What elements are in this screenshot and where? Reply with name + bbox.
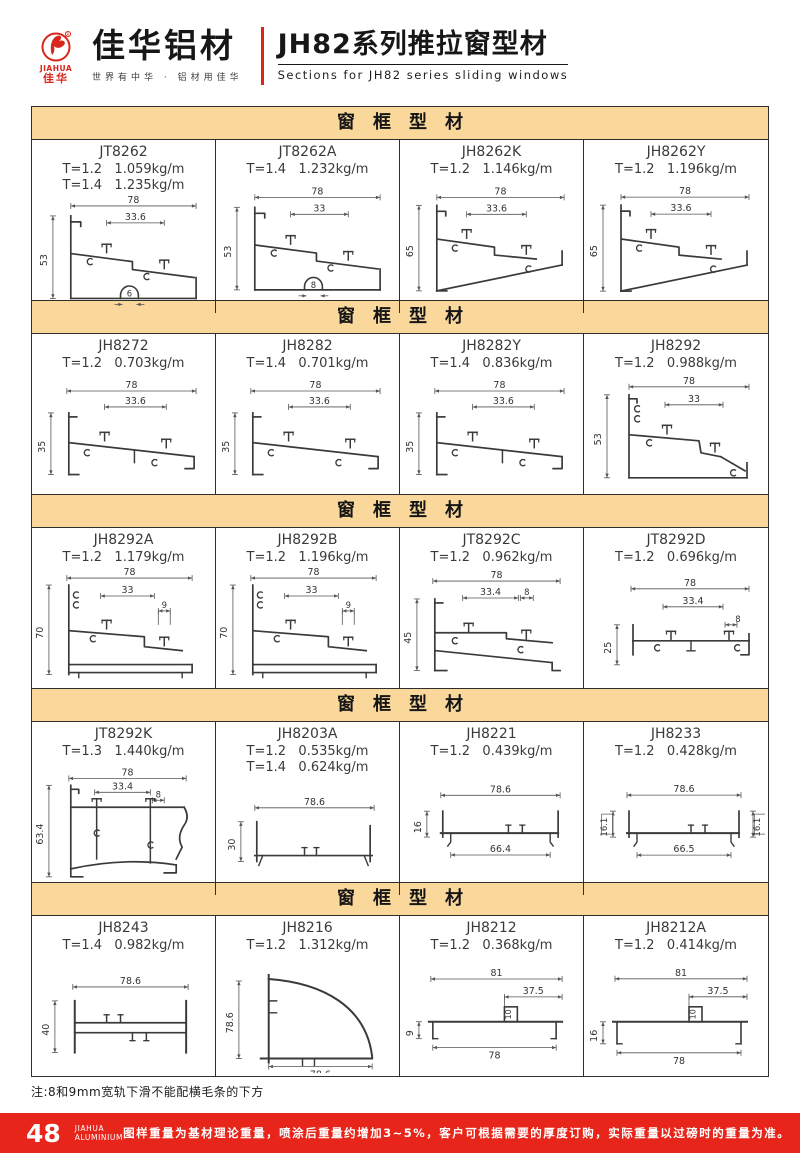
profile-model: JH8212A (584, 920, 768, 938)
profile-model: JT8262 (32, 144, 215, 162)
svg-text:63.4: 63.4 (35, 824, 46, 845)
profile-drawing-svg: 7833.635 (219, 373, 396, 491)
profile-model: JH8272 (32, 338, 215, 356)
profile-model: JH8221 (400, 726, 583, 744)
svg-text:8: 8 (311, 280, 316, 290)
profile-cell-JH8212: JH8212T=1.2 0.368kg/m8137.510978 (400, 916, 584, 1076)
profile-drawing: 7833.665 (584, 178, 768, 312)
profile-weight: T=1.2 1.196kg/m (584, 162, 768, 179)
svg-text:33.6: 33.6 (486, 204, 507, 215)
svg-text:33.6: 33.6 (125, 212, 146, 223)
profile-drawing-svg: 7833538 (219, 179, 396, 309)
profile-weight: T=1.4 1.232kg/m (216, 162, 399, 179)
profile-cell-JH8292B: JH8292BT=1.2 1.196kg/m7870339 (216, 528, 400, 688)
svg-text:8: 8 (524, 587, 529, 597)
profile-weight: T=1.4 0.701kg/m (216, 356, 399, 373)
profile-drawing-svg: 7870339 (219, 567, 396, 685)
profile-cell-JH8262K: JH8262KT=1.2 1.146kg/m7833.665 (400, 140, 584, 313)
brand-logo: R JIAHUA 佳华 佳华铝材 世界有中华 · 铝材用佳华 (30, 28, 243, 85)
profile-model: JT8292D (584, 532, 768, 550)
profile-model: JH8292 (584, 338, 768, 356)
svg-text:6: 6 (127, 289, 132, 299)
svg-text:10: 10 (504, 1010, 513, 1020)
svg-text:78.6: 78.6 (225, 1013, 236, 1034)
svg-text:25: 25 (603, 642, 614, 654)
page-number: 48 (26, 1121, 61, 1146)
profile-drawing: 78.630 (216, 777, 399, 894)
svg-text:33: 33 (688, 394, 700, 405)
svg-text:66.4: 66.4 (490, 844, 511, 855)
profile-cell-JH8203A: JH8203AT=1.2 0.535kg/mT=1.4 0.624kg/m78.… (216, 722, 400, 895)
profile-drawing: 7833.635 (216, 372, 399, 494)
profile-drawing: 7870339 (32, 566, 215, 688)
svg-text:78.6: 78.6 (120, 976, 141, 987)
footer-disclaimer: 图样重量为基材理论重量，喷涂后重量约增加3~5%，客户可根据需要的厚度订购，实际… (123, 1125, 790, 1141)
svg-text:78: 78 (127, 196, 139, 206)
profile-cell-JT8262: JT8262T=1.2 1.059kg/mT=1.4 1.235kg/m7833… (32, 140, 216, 313)
profile-cell-JH8292: JH8292T=1.2 0.988kg/m783353 (584, 334, 768, 494)
emblem-flower-icon: R (38, 28, 74, 64)
profile-weight: T=1.2 1.179kg/m (32, 550, 215, 567)
profile-drawing-svg: 7833.665 (403, 179, 580, 309)
profile-model: JT8262A (216, 144, 399, 162)
profile-row: JT8292KT=1.3 1.440kg/m7833.4863.4JH8203A… (31, 722, 769, 882)
jiahua-emblem-icon: R JIAHUA 佳华 (30, 28, 82, 85)
svg-text:33: 33 (121, 585, 133, 596)
header-divider (261, 27, 264, 85)
profile-weight: T=1.2 1.196kg/m (216, 550, 399, 567)
svg-text:16: 16 (589, 1030, 600, 1042)
svg-text:35: 35 (37, 441, 48, 453)
emblem-seal-text: 佳华 (30, 73, 82, 84)
svg-text:16.1: 16.1 (753, 818, 763, 837)
profile-model: JH8292A (32, 532, 215, 550)
profile-weight: T=1.2 0.962kg/m (400, 550, 583, 567)
profile-drawing-svg: 7833.635 (403, 373, 580, 491)
profile-drawing-svg: 78.630 (219, 778, 396, 891)
profile-model: JH8233 (584, 726, 768, 744)
profile-weight: T=1.2 0.414kg/m (584, 938, 768, 955)
svg-text:8: 8 (156, 790, 161, 800)
brand-tagline: 世界有中华 · 铝材用佳华 (92, 70, 243, 83)
svg-text:33.4: 33.4 (480, 587, 501, 598)
profile-cell-JT8292K: JT8292KT=1.3 1.440kg/m7833.4863.4 (32, 722, 216, 895)
profile-cell-JH8233: JH8233T=1.2 0.428kg/m78.616.116.166.5 (584, 722, 768, 895)
svg-text:37.5: 37.5 (523, 986, 544, 997)
footer-brand: JIAHUA ALUMINIUM (75, 1124, 123, 1142)
svg-text:78: 78 (125, 380, 137, 391)
profile-model: JT8292C (400, 532, 583, 550)
svg-text:66.5: 66.5 (673, 845, 694, 856)
svg-text:33.4: 33.4 (112, 782, 133, 793)
profile-cell-JH8221: JH8221T=1.2 0.439kg/m78.61666.4 (400, 722, 584, 895)
profile-drawing: 7833.665 (400, 178, 583, 312)
svg-text:33.6: 33.6 (309, 396, 330, 407)
svg-text:33.6: 33.6 (125, 396, 146, 407)
profile-weight: T=1.4 0.624kg/m (216, 760, 399, 777)
svg-text:16: 16 (413, 822, 424, 834)
profile-model: JH8262K (400, 144, 583, 162)
profile-model: JH8262Y (584, 144, 768, 162)
profile-model: JH8216 (216, 920, 399, 938)
profile-model: JH8282Y (400, 338, 583, 356)
profile-cell-JT8292C: JT8292CT=1.2 0.962kg/m7833.4845 (400, 528, 584, 688)
svg-text:78: 78 (490, 570, 502, 581)
page-footer: 48 JIAHUA ALUMINIUM 图样重量为基材理论重量，喷涂后重量约增加… (0, 1113, 800, 1153)
profile-cell-JH8292A: JH8292AT=1.2 1.179kg/m7870339 (32, 528, 216, 688)
profile-drawing: 78.640 (32, 954, 215, 1076)
svg-text:78.6: 78.6 (673, 785, 694, 796)
svg-text:78: 78 (673, 1056, 685, 1067)
svg-text:65: 65 (589, 245, 600, 257)
svg-text:78: 78 (679, 187, 691, 198)
svg-text:33: 33 (313, 204, 325, 215)
profile-model: JH8243 (32, 920, 215, 938)
profile-drawing: 7870339 (216, 566, 399, 688)
svg-text:9: 9 (162, 600, 167, 610)
section-banner: 窗框型材 (31, 688, 769, 722)
svg-text:40: 40 (41, 1024, 52, 1036)
svg-text:33.6: 33.6 (493, 396, 514, 407)
profile-drawing: 7833.635 (32, 372, 215, 494)
profile-drawing-svg: 78.640 (35, 955, 212, 1073)
profile-model: JH8203A (216, 726, 399, 744)
brand-name: 佳华铝材 (92, 29, 243, 64)
svg-text:78: 78 (121, 768, 133, 779)
profile-row: JH8272T=1.2 0.703kg/m7833.635JH8282T=1.4… (31, 334, 769, 494)
profile-drawing: 8137.510978 (400, 954, 583, 1076)
profile-row: JT8262T=1.2 1.059kg/mT=1.4 1.235kg/m7833… (31, 140, 769, 300)
svg-text:81: 81 (490, 968, 502, 979)
profile-weight: T=1.2 1.312kg/m (216, 938, 399, 955)
svg-text:78: 78 (307, 567, 319, 578)
profile-weight: T=1.2 1.146kg/m (400, 162, 583, 179)
svg-text:78.6: 78.6 (490, 785, 511, 796)
profile-cell-JT8292D: JT8292DT=1.2 0.696kg/m7833.4825 (584, 528, 768, 688)
profile-weight: T=1.2 0.696kg/m (584, 550, 768, 567)
page-header: R JIAHUA 佳华 佳华铝材 世界有中华 · 铝材用佳华 JH82系列推拉窗… (0, 0, 800, 96)
profile-drawing: 78.678.6 (216, 954, 399, 1076)
profile-table: 窗框型材JT8262T=1.2 1.059kg/mT=1.4 1.235kg/m… (31, 106, 769, 1077)
section-banner: 窗框型材 (31, 106, 769, 140)
profile-drawing: 7833538 (216, 178, 399, 312)
footer-brand-line2: ALUMINIUM (75, 1133, 123, 1142)
profile-drawing-svg: 7833.635 (35, 373, 212, 491)
profile-drawing: 78.61666.4 (400, 760, 583, 894)
profile-weight: T=1.2 0.439kg/m (400, 744, 583, 761)
profile-model: JH8212 (400, 920, 583, 938)
profile-drawing: 8137.5101678 (584, 954, 768, 1076)
profile-drawing-svg: 7833.4863.4 (35, 761, 212, 891)
profile-weight: T=1.2 0.368kg/m (400, 938, 583, 955)
profile-weight: T=1.2 0.703kg/m (32, 356, 215, 373)
profile-drawing-svg: 7833.6536 (35, 196, 212, 309)
footer-brand-line1: JIAHUA (75, 1124, 123, 1133)
profile-drawing-svg: 8137.510978 (403, 955, 580, 1073)
page-subtitle: Sections for JH82 series sliding windows (278, 68, 569, 82)
profile-drawing-svg: 8137.5101678 (587, 955, 765, 1073)
svg-text:33.4: 33.4 (682, 596, 703, 607)
svg-text:78.6: 78.6 (310, 1070, 331, 1073)
footnote: 注:8和9mm宽轨下滑不能配横毛条的下方 (31, 1083, 769, 1100)
profile-model: JH8282 (216, 338, 399, 356)
svg-text:33.6: 33.6 (670, 204, 691, 215)
profile-drawing: 7833.4845 (400, 566, 583, 688)
profile-drawing: 783353 (584, 372, 768, 494)
svg-text:53: 53 (39, 254, 50, 266)
svg-text:65: 65 (405, 245, 416, 257)
profile-cell-JH8216: JH8216T=1.2 1.312kg/m78.678.6 (216, 916, 400, 1076)
profile-row: JH8243T=1.4 0.982kg/m78.640JH8216T=1.2 1… (31, 916, 769, 1076)
profile-drawing-svg: 7870339 (35, 567, 212, 685)
profile-drawing-svg: 783353 (587, 373, 765, 491)
svg-text:8: 8 (735, 615, 740, 625)
profile-drawing: 78.616.116.166.5 (584, 760, 768, 894)
svg-text:35: 35 (221, 441, 232, 453)
svg-text:9: 9 (346, 600, 351, 610)
profile-weight: T=1.4 0.982kg/m (32, 938, 215, 955)
profile-weight: T=1.4 0.836kg/m (400, 356, 583, 373)
svg-text:53: 53 (593, 434, 604, 446)
profile-model: JT8292K (32, 726, 215, 744)
svg-text:10: 10 (689, 1010, 698, 1020)
svg-text:45: 45 (403, 632, 414, 644)
svg-text:78: 78 (494, 187, 506, 198)
profile-cell-JH8262Y: JH8262YT=1.2 1.196kg/m7833.665 (584, 140, 768, 313)
svg-text:78: 78 (683, 376, 695, 387)
profile-drawing-svg: 78.616.116.166.5 (587, 761, 765, 891)
profile-weight: T=1.3 1.440kg/m (32, 744, 215, 761)
profile-weight: T=1.4 1.235kg/m (32, 178, 215, 195)
profile-weight: T=1.2 0.988kg/m (584, 356, 768, 373)
profile-drawing-svg: 7833.665 (587, 179, 765, 309)
svg-text:78: 78 (684, 578, 696, 589)
profile-row: JH8292AT=1.2 1.179kg/m7870339JH8292BT=1.… (31, 528, 769, 688)
profile-weight: T=1.2 0.428kg/m (584, 744, 768, 761)
title-block: JH82系列推拉窗型材 Sections for JH82 series sli… (278, 30, 569, 82)
profile-drawing-svg: 7833.4845 (403, 567, 580, 685)
svg-text:78: 78 (123, 567, 135, 578)
profile-drawing: 7833.635 (400, 372, 583, 494)
brand-text: 佳华铝材 世界有中华 · 铝材用佳华 (92, 29, 243, 83)
profile-cell-JH8272: JH8272T=1.2 0.703kg/m7833.635 (32, 334, 216, 494)
svg-text:78.6: 78.6 (304, 797, 325, 808)
svg-text:78: 78 (488, 1051, 500, 1062)
svg-text:78: 78 (309, 380, 321, 391)
profile-cell-JH8282Y: JH8282YT=1.4 0.836kg/m7833.635 (400, 334, 584, 494)
svg-text:35: 35 (405, 441, 416, 453)
svg-text:30: 30 (227, 839, 238, 851)
svg-text:R: R (66, 32, 69, 38)
svg-text:33: 33 (305, 585, 317, 596)
page-title: JH82系列推拉窗型材 (278, 30, 569, 65)
profile-weight: T=1.2 1.059kg/m (32, 162, 215, 179)
svg-text:81: 81 (675, 968, 687, 979)
profile-drawing-svg: 78.61666.4 (403, 761, 580, 891)
profile-drawing: 7833.6536 (32, 195, 215, 312)
svg-text:70: 70 (219, 627, 230, 639)
profile-drawing-svg: 78.678.6 (219, 955, 396, 1073)
profile-drawing: 7833.4863.4 (32, 760, 215, 894)
svg-text:70: 70 (35, 627, 46, 639)
svg-text:78: 78 (311, 187, 323, 198)
profile-cell-JH8212A: JH8212AT=1.2 0.414kg/m8137.5101678 (584, 916, 768, 1076)
profile-cell-JH8243: JH8243T=1.4 0.982kg/m78.640 (32, 916, 216, 1076)
profile-cell-JT8262A: JT8262AT=1.4 1.232kg/m7833538 (216, 140, 400, 313)
svg-text:37.5: 37.5 (707, 986, 728, 997)
svg-text:78: 78 (493, 380, 505, 391)
svg-text:53: 53 (223, 246, 234, 258)
profile-model: JH8292B (216, 532, 399, 550)
profile-weight: T=1.2 0.535kg/m (216, 744, 399, 761)
profile-cell-JH8282: JH8282T=1.4 0.701kg/m7833.635 (216, 334, 400, 494)
profile-drawing-svg: 7833.4825 (587, 567, 765, 685)
svg-text:9: 9 (405, 1031, 416, 1037)
catalog-page: R JIAHUA 佳华 佳华铝材 世界有中华 · 铝材用佳华 JH82系列推拉窗… (0, 0, 800, 1167)
section-banner: 窗框型材 (31, 494, 769, 528)
profile-drawing: 7833.4825 (584, 566, 768, 688)
svg-text:16.1: 16.1 (600, 818, 610, 837)
